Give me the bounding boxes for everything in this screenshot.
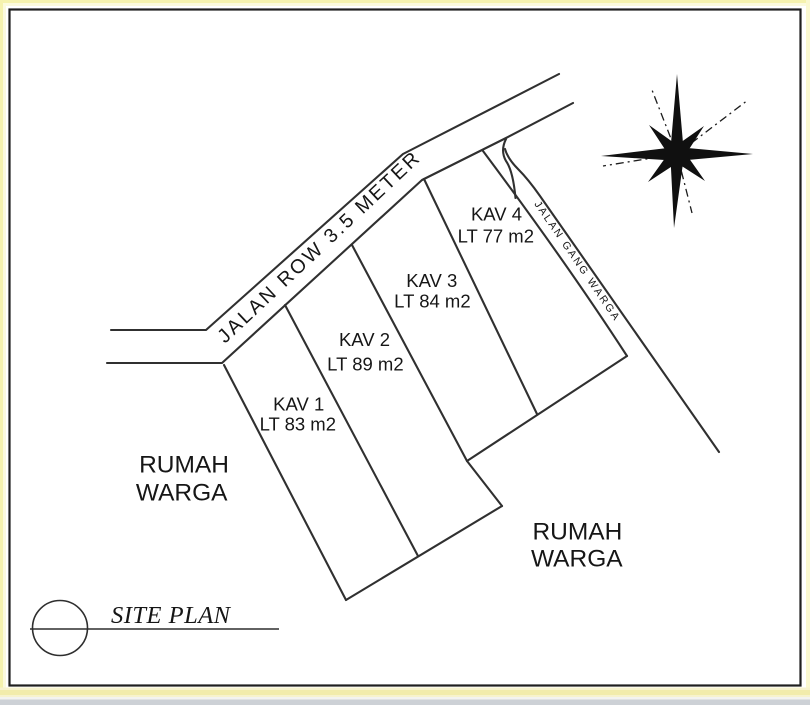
svg-text:WARGA: WARGA (531, 545, 623, 572)
svg-text:KAV 2: KAV 2 (339, 329, 390, 350)
svg-text:KAV 1: KAV 1 (273, 394, 324, 415)
svg-text:RUMAH: RUMAH (532, 519, 622, 546)
svg-text:WARGA: WARGA (136, 479, 228, 506)
svg-text:LT 83 m2: LT 83 m2 (260, 414, 336, 435)
svg-text:RUMAH: RUMAH (139, 452, 229, 479)
svg-text:SITE PLAN: SITE PLAN (111, 602, 232, 629)
svg-text:KAV 3: KAV 3 (406, 270, 457, 291)
svg-text:LT 77 m2: LT 77 m2 (458, 225, 534, 246)
svg-text:KAV 4: KAV 4 (471, 204, 522, 225)
svg-text:LT 89 m2: LT 89 m2 (327, 353, 403, 374)
svg-text:LT 84 m2: LT 84 m2 (394, 291, 470, 312)
